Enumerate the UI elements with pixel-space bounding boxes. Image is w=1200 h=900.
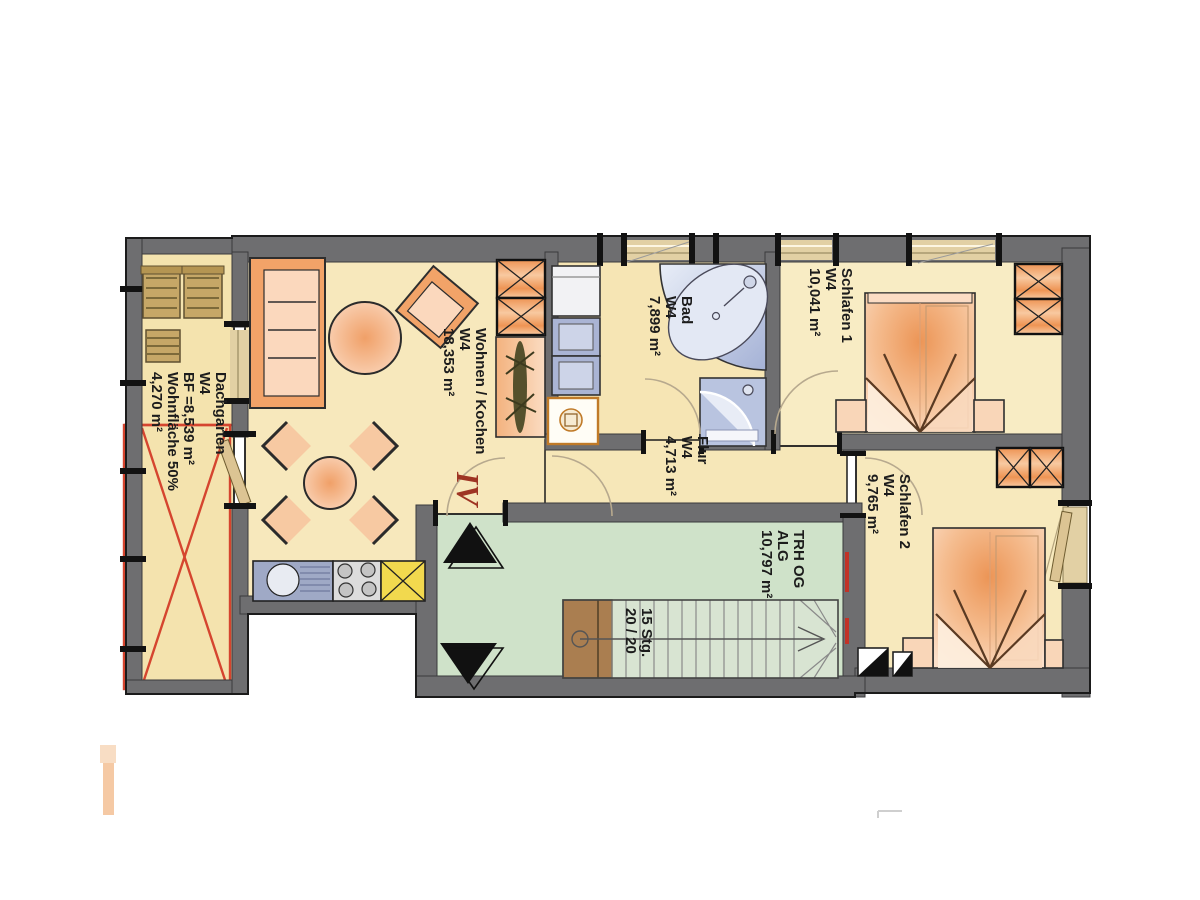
wall-dachgarten-bottom [126,680,248,694]
wall-dachgarten-left [126,238,142,694]
wardrobe-schlafen2 [997,448,1063,487]
area-value: 18,353 m² [440,328,456,454]
wall-east-upper [1062,248,1090,505]
room-label-schlafen1: Schlafen 1 W4 10,041 m² [806,268,854,343]
room-name: TRH OG [790,530,806,598]
area-value: 10,797 m² [758,530,774,598]
area-value: 4,270 m² [148,372,164,491]
floorplan-page: Dachgarten W4 BF =8,539 m² Wohnfläche 50… [0,0,1200,900]
shaft-symbols [858,648,912,676]
kitchen-sink [253,561,333,601]
window-dachgarten-wall [230,330,249,398]
nightstand [974,400,1004,432]
room-label-flur: Flur W4 4,713 m² [662,436,710,496]
room-label-dachgarten: Dachgarten W4 BF =8,539 m² Wohnfläche 50… [148,372,228,491]
garden-table [146,330,180,362]
bed-1 [865,293,975,432]
room-label-schlafen2: Schlafen 2 W4 9,765 m² [864,474,912,549]
unit-id: W4 [196,372,212,491]
unit-id: W4 [662,296,678,356]
area-value: 4,713 m² [662,436,678,496]
nightstand [1045,640,1063,668]
stove [333,561,381,601]
room-label-treppenhaus: TRH OG ALG 10,797 m² [758,530,806,598]
window-bad [625,240,692,262]
stair-count: 15 Stg. [638,608,654,657]
bed-2 [933,528,1045,668]
area-note: Wohnfläche 50% [164,372,180,491]
unit-id: W4 [456,328,472,454]
window-schlafen1-a [778,240,832,260]
stray-mark [878,811,902,818]
apartment-number-label: IV [452,472,484,506]
window-schlafen1-b [910,240,995,263]
room-name: Wohnen / Kochen [472,328,488,454]
area-value: 9,765 m² [864,474,880,549]
dining-table [304,457,356,509]
wall-stairwell-south [416,676,865,697]
unit-id: W4 [678,436,694,496]
wardrobe-schlafen1 [1015,264,1062,334]
stair-dimensions: 20 / 20 [622,608,638,657]
deck-chair-2 [182,266,224,318]
room-name: Flur [694,436,710,496]
area-value: 7,899 m² [646,296,662,356]
washing-machine [552,266,600,316]
area-value: 10,041 m² [806,268,822,343]
unit-id: W4 [880,474,896,549]
wall-stairwell-top [503,503,862,522]
wall-bad-schlafen1 [765,252,780,450]
coffee-table [329,302,401,374]
unit-id: ALG [774,530,790,598]
deck-chair-1 [141,266,182,318]
artifact-mark [103,763,114,815]
kitchen-counter [253,561,425,601]
room-name: Bad [678,296,694,356]
stairs-label: 15 Stg. 20 / 20 [622,608,654,657]
room-name: Schlafen 2 [896,474,912,549]
unit-id: W4 [822,268,838,343]
room-label-bad: Bad W4 7,899 m² [646,296,694,356]
washbasin-vanity [552,318,600,395]
nightstand [836,400,866,432]
room-label-wohnen-kochen: Wohnen / Kochen W4 18,353 m² [440,328,488,454]
room-name: Schlafen 1 [838,268,854,343]
kitchen-cabinet [381,561,425,601]
room-name: Dachgarten [212,372,228,491]
sofa [250,258,325,408]
wc [548,398,598,444]
artifact-mark [100,745,116,763]
page-artifacts [100,745,902,818]
area-value: BF =8,539 m² [180,372,196,491]
wall-schlafen2-south [855,668,1090,693]
staircase [563,600,838,678]
living-cabinets [497,260,545,335]
sideboard [496,337,545,437]
